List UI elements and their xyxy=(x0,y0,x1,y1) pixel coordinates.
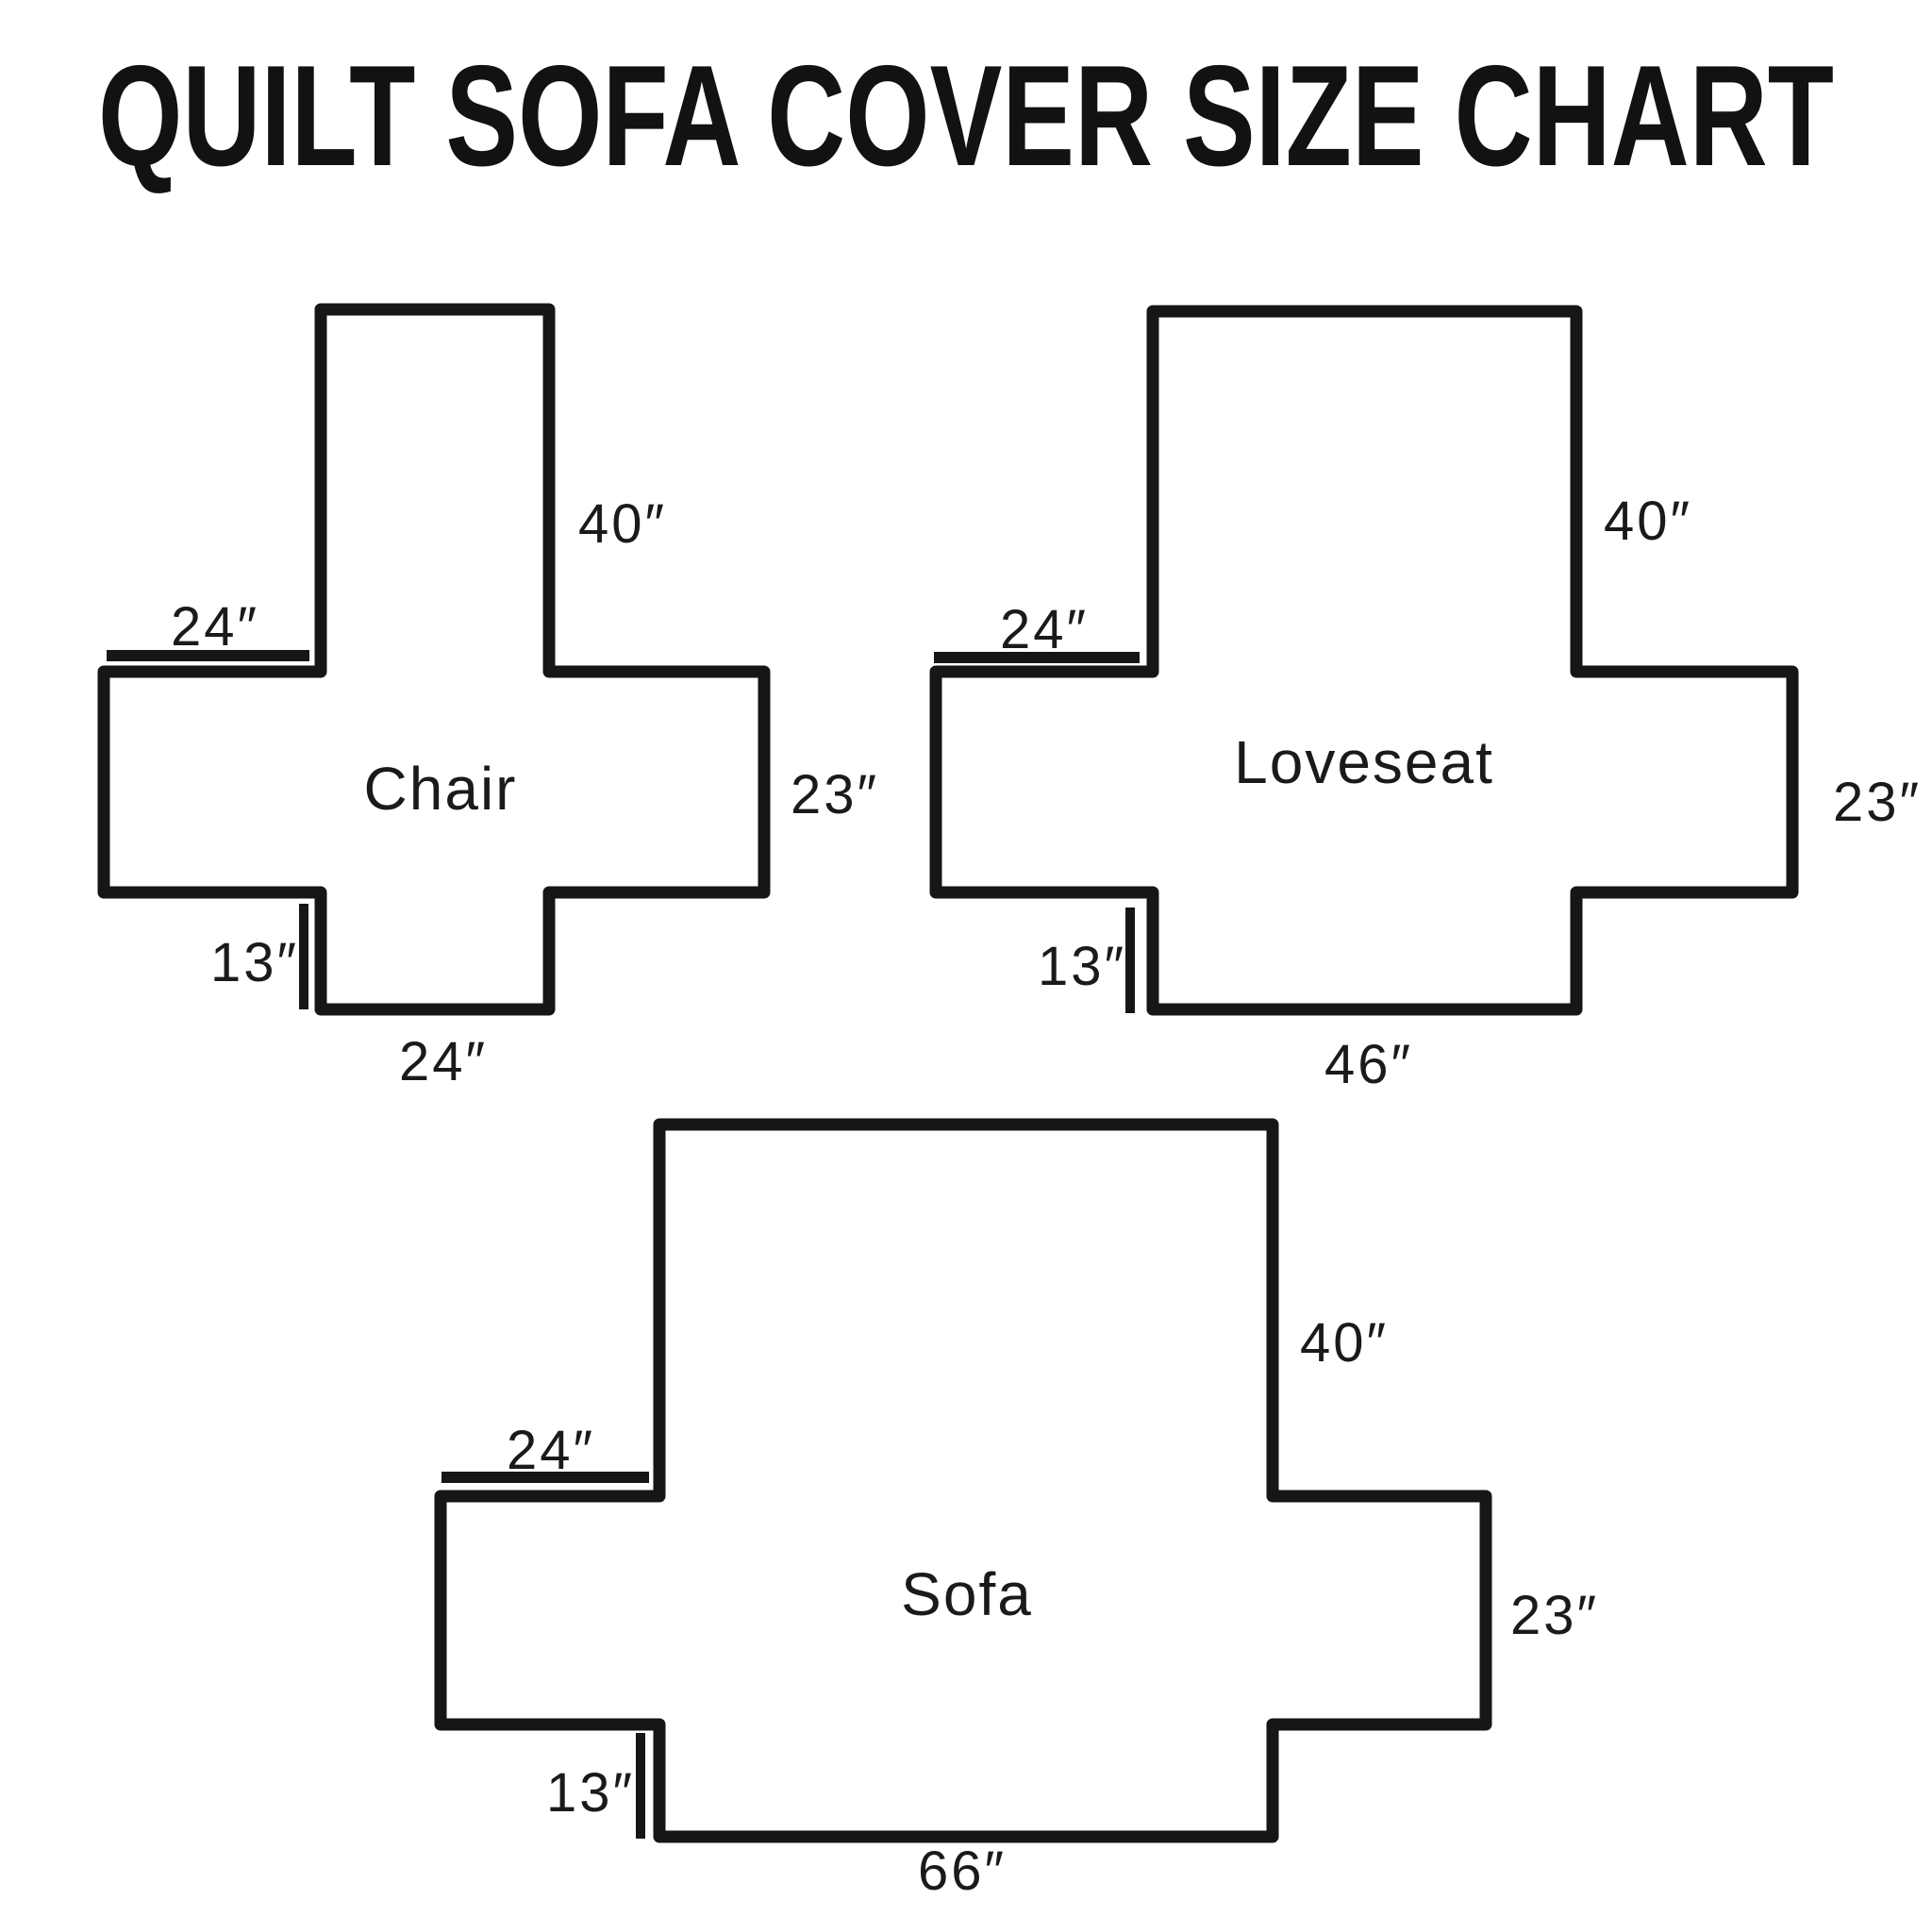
sofa-arm-top-width-label: 24″ xyxy=(507,1420,595,1481)
sofa-arm-side-height-label: 23″ xyxy=(1510,1585,1599,1646)
loveseat-arm-top-width-label: 24″ xyxy=(1000,599,1089,660)
page-title: QUILT SOFA COVER SIZE CHART xyxy=(98,36,1834,196)
loveseat-back-height-label: 40″ xyxy=(1604,491,1692,552)
loveseat-seat-front-width-label: 46″ xyxy=(1324,1034,1413,1095)
sofa-seat-front-width-label: 66″ xyxy=(918,1840,1007,1902)
size-chart-canvas: QUILT SOFA COVER SIZE CHART Chair 40″ 24… xyxy=(0,0,1932,1932)
sofa-back-height-label: 40″ xyxy=(1300,1312,1389,1374)
sofa-front-drop-label: 13″ xyxy=(546,1762,635,1824)
chair-seat-front-width-label: 24″ xyxy=(399,1031,488,1092)
chair-arm-top-width-label: 24″ xyxy=(171,596,259,658)
sofa-label: Sofa xyxy=(901,1560,1033,1628)
sofa-diagram: Sofa 40″ 24″ 23″ 13″ 66″ xyxy=(441,1124,1599,1902)
loveseat-arm-side-height-label: 23″ xyxy=(1833,772,1922,833)
chair-arm-side-height-label: 23″ xyxy=(791,764,879,825)
loveseat-diagram: Loveseat 40″ 24″ 23″ 13″ 46″ xyxy=(934,311,1922,1095)
chair-diagram: Chair 40″ 24″ 23″ 13″ 24″ xyxy=(104,309,879,1092)
chair-front-drop-label: 13″ xyxy=(210,932,299,993)
loveseat-label: Loveseat xyxy=(1234,728,1494,796)
chair-back-height-label: 40″ xyxy=(578,493,667,555)
loveseat-front-drop-label: 13″ xyxy=(1038,936,1126,997)
chair-label: Chair xyxy=(364,755,518,823)
